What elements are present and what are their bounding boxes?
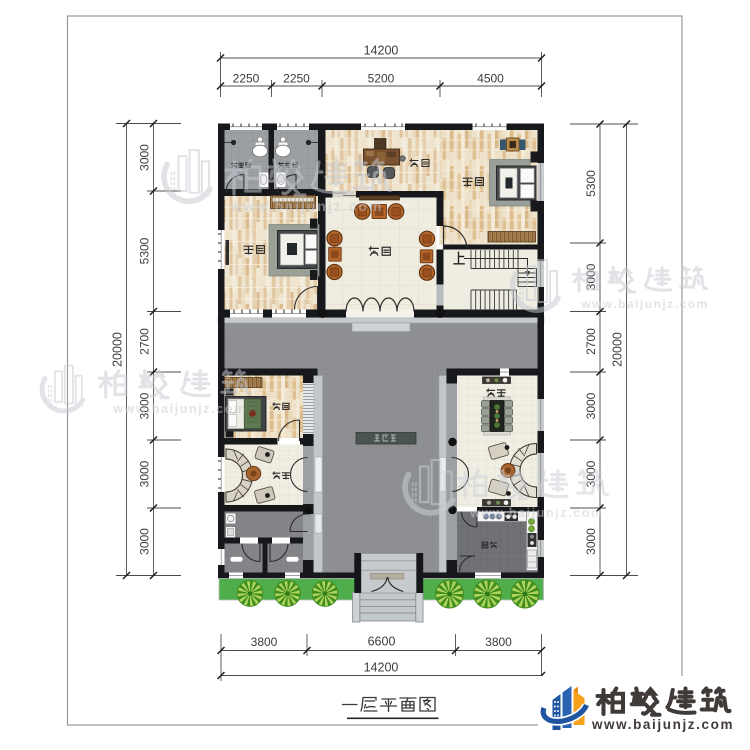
svg-text:www.baijunjz.com: www.baijunjz.com (112, 402, 246, 416)
svg-text:20000: 20000 (611, 332, 625, 367)
svg-text:www.baijunjz.com: www.baijunjz.com (591, 717, 734, 732)
svg-text:2250: 2250 (283, 72, 310, 86)
svg-text:5300: 5300 (584, 170, 598, 197)
svg-text:14200: 14200 (364, 44, 399, 58)
svg-text:3000: 3000 (584, 392, 598, 419)
svg-text:3000: 3000 (584, 528, 598, 555)
svg-text:6600: 6600 (368, 635, 396, 649)
svg-text:3000: 3000 (138, 460, 152, 487)
svg-text:www.baijunjz.com: www.baijunjz.com (469, 506, 603, 520)
svg-text:4500: 4500 (477, 72, 504, 86)
svg-text:www.baijunjz.com: www.baijunjz.com (580, 297, 709, 311)
svg-text:3000: 3000 (138, 144, 152, 171)
svg-text:5200: 5200 (368, 72, 395, 86)
svg-text:3000: 3000 (138, 528, 152, 555)
svg-text:5300: 5300 (138, 237, 152, 264)
svg-text:3800: 3800 (485, 635, 512, 649)
svg-text:3800: 3800 (251, 635, 278, 649)
svg-text:2700: 2700 (584, 328, 598, 355)
svg-text:14200: 14200 (364, 661, 399, 675)
svg-text:2700: 2700 (138, 328, 152, 355)
svg-text:www.baijunjz.com: www.baijunjz.com (230, 198, 384, 214)
svg-text:20000: 20000 (111, 332, 125, 367)
svg-text:2250: 2250 (233, 72, 260, 86)
